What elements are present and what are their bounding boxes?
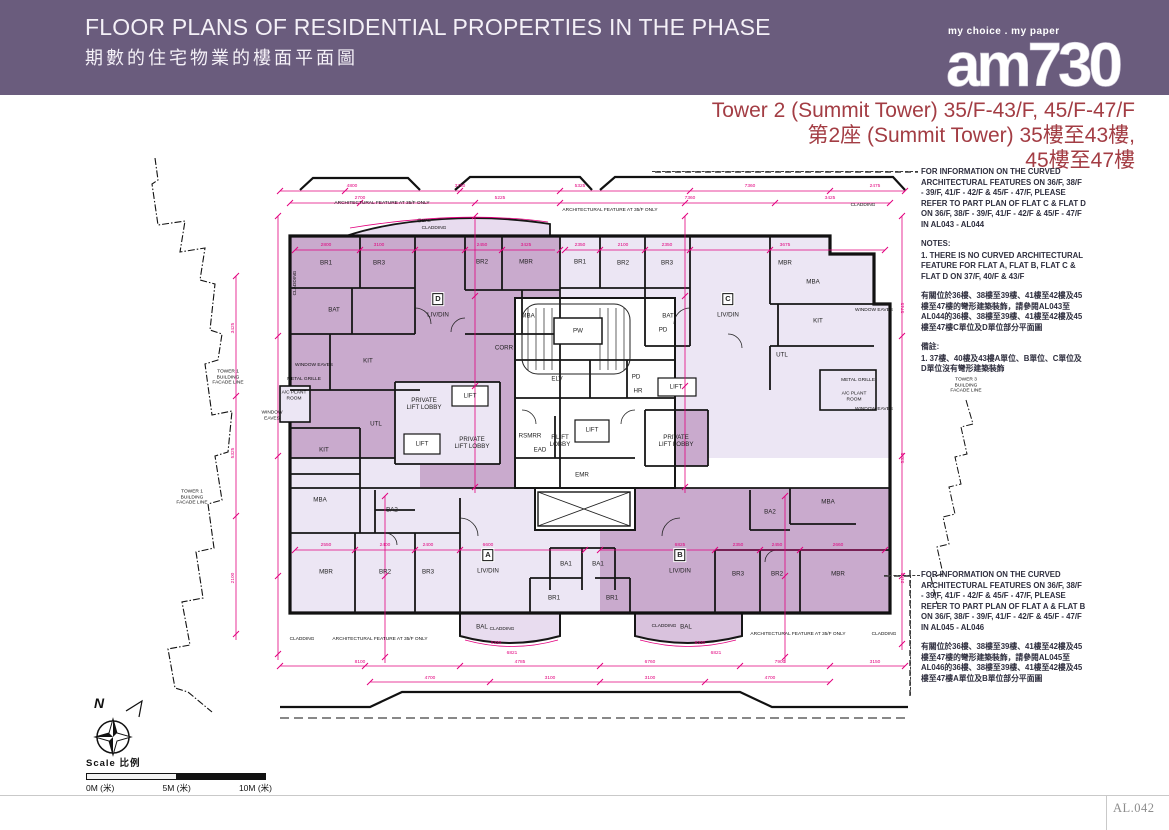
scale-label: Scale 比例 <box>86 755 276 769</box>
notes-top-zh-note1: 1. 37樓、40樓及43樓A單位、B單位、C單位及 D單位沒有彎形建築裝飾 <box>921 354 1169 375</box>
scale-10m: 10M (米) <box>239 782 272 794</box>
notes-top-zh: 有關位於36樓、38樓至39樓、41樓至42樓及45 樓至47樓的彎形建築裝飾，… <box>921 291 1169 333</box>
north-label: N <box>94 695 104 711</box>
notes-heading: NOTES: <box>921 239 1169 250</box>
tower-title-line1: Tower 2 (Summit Tower) 35/F-43/F, 45/F-4… <box>712 99 1135 124</box>
notes-top: FOR INFORMATION ON THE CURVED ARCHITECTU… <box>921 167 1169 384</box>
am730-logo: my choice . my paper am730 <box>946 26 1119 94</box>
header-band: FLOOR PLANS OF RESIDENTIAL PROPERTIES IN… <box>0 0 1169 95</box>
tower-title-line2: 第2座 (Summit Tower) 35樓至43樓, <box>712 124 1135 149</box>
notes-top-note1: 1. THERE IS NO CURVED ARCHITECTURAL FEAT… <box>921 251 1169 283</box>
footer-rule <box>0 795 1169 796</box>
leader-top <box>652 171 918 172</box>
page-title-en: FLOOR PLANS OF RESIDENTIAL PROPERTIES IN… <box>85 14 771 41</box>
ac-plant-room-left <box>280 386 310 422</box>
notes-bottom-zh: 有關位於36樓、38樓至39樓、41樓至42樓及45 樓至47樓的彎形建築裝飾，… <box>921 642 1169 684</box>
scale-ticks: 0M (米) 5M (米) 10M (米) <box>86 782 272 794</box>
notes-top-en: FOR INFORMATION ON THE CURVED ARCHITECTU… <box>921 167 1169 230</box>
scale-segment-0-5 <box>87 774 176 779</box>
page-title-zh: 期數的住宅物業的樓面平面圖 <box>85 44 358 70</box>
scale-5m: 5M (米) <box>162 782 190 794</box>
notes-bottom-en: FOR INFORMATION ON THE CURVED ARCHITECTU… <box>921 570 1169 633</box>
logo-text: am730 <box>946 37 1119 94</box>
page: FLOOR PLANS OF RESIDENTIAL PROPERTIES IN… <box>0 0 1169 830</box>
floor-plan: BR1BR3BR2MBRBATMBADLIV/DINKITCORRPRIVATE… <box>130 158 1040 738</box>
scale-bar: Scale 比例 0M (米) 5M (米) 10M (米) <box>86 755 276 794</box>
scale-segment-5-10 <box>176 774 265 779</box>
notes-bottom: FOR INFORMATION ON THE CURVED ARCHITECTU… <box>921 570 1169 693</box>
balcony-top <box>346 218 550 236</box>
balcony-b <box>635 613 742 643</box>
page-number: AL.042 <box>1113 801 1155 816</box>
tower1-facade-line <box>152 158 232 712</box>
ac-plant-room-right <box>820 370 876 410</box>
leader-bottom-vertical <box>910 575 911 695</box>
balcony-a <box>460 613 560 643</box>
scale-bar-graphic <box>86 773 266 780</box>
floor-plan-drawing <box>130 158 1040 738</box>
leader-bottom <box>884 575 920 576</box>
footer-tick <box>1106 796 1107 830</box>
scale-0m: 0M (米) <box>86 782 114 794</box>
notes-zh-heading: 備註: <box>921 342 1169 353</box>
